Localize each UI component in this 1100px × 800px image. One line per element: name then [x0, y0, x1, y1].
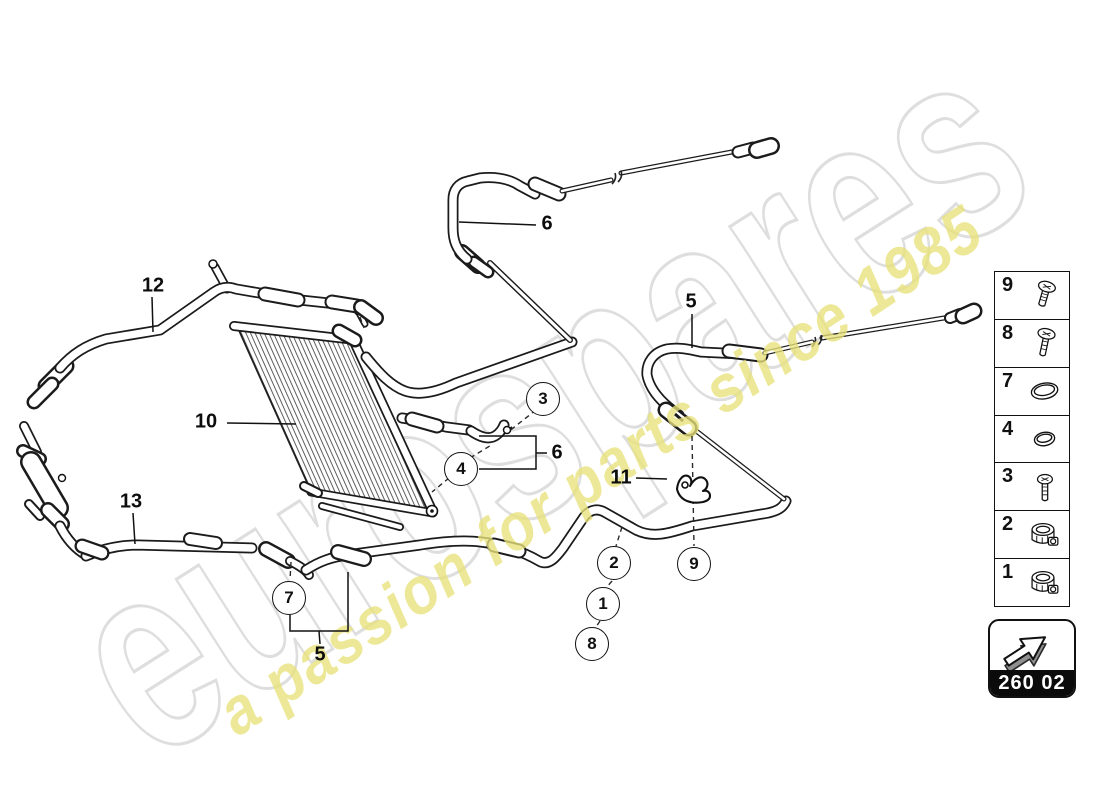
- page-code: 260 02: [990, 670, 1074, 696]
- label-13: 13: [120, 491, 142, 514]
- label-6-mid: 6: [551, 442, 562, 465]
- legend-item-3[interactable]: 3: [995, 462, 1069, 510]
- page-code-badge: 260 02: [988, 619, 1076, 698]
- section-arrow-icon: [990, 621, 1073, 671]
- label-5-right: 5: [685, 291, 696, 314]
- callout-9[interactable]: 9: [677, 547, 711, 581]
- legend-item-9[interactable]: 9: [995, 272, 1069, 319]
- screw-icon: [1018, 465, 1068, 509]
- callout-3[interactable]: 3: [526, 382, 560, 416]
- legend-item-number: 4: [1002, 419, 1013, 439]
- legend-item-number: 8: [1002, 323, 1013, 343]
- label-11: 11: [610, 467, 631, 490]
- legend-item-4[interactable]: 4: [995, 415, 1069, 463]
- o-ring-large-icon: [1018, 369, 1068, 413]
- label-12: 12: [142, 275, 164, 298]
- callout-2[interactable]: 2: [597, 546, 631, 580]
- callout-8[interactable]: 8: [575, 627, 609, 661]
- legend-item-1[interactable]: 1: [995, 558, 1069, 606]
- hose-clamp-icon: [1018, 561, 1068, 605]
- flange-screw-icon: [1018, 321, 1068, 365]
- legend-item-number: 9: [1002, 275, 1013, 295]
- label-5-bottom: 5: [314, 644, 325, 667]
- callout-1[interactable]: 1: [586, 587, 620, 621]
- parts-legend: 9 8 7: [994, 271, 1070, 607]
- fitting-screw-icon: [504, 427, 511, 434]
- legend-item-number: 2: [1002, 514, 1013, 534]
- o-ring-small-icon: [1018, 417, 1068, 461]
- label-6-top: 6: [541, 213, 552, 236]
- legend-item-7[interactable]: 7: [995, 367, 1069, 415]
- legend-item-number: 3: [1002, 466, 1013, 486]
- hose-clamp-icon: [1018, 513, 1068, 557]
- callout-4[interactable]: 4: [444, 452, 478, 486]
- retaining-clip: [677, 476, 710, 503]
- parts-diagram-page: eurospares: [0, 0, 1100, 800]
- label-10: 10: [195, 411, 217, 434]
- legend-item-number: 1: [1002, 562, 1013, 582]
- legend-item-number: 7: [1002, 371, 1013, 391]
- flange-screw-icon: [1018, 273, 1068, 317]
- legend-item-2[interactable]: 2: [995, 510, 1069, 558]
- legend-item-8[interactable]: 8: [995, 319, 1069, 367]
- callout-7[interactable]: 7: [272, 581, 306, 615]
